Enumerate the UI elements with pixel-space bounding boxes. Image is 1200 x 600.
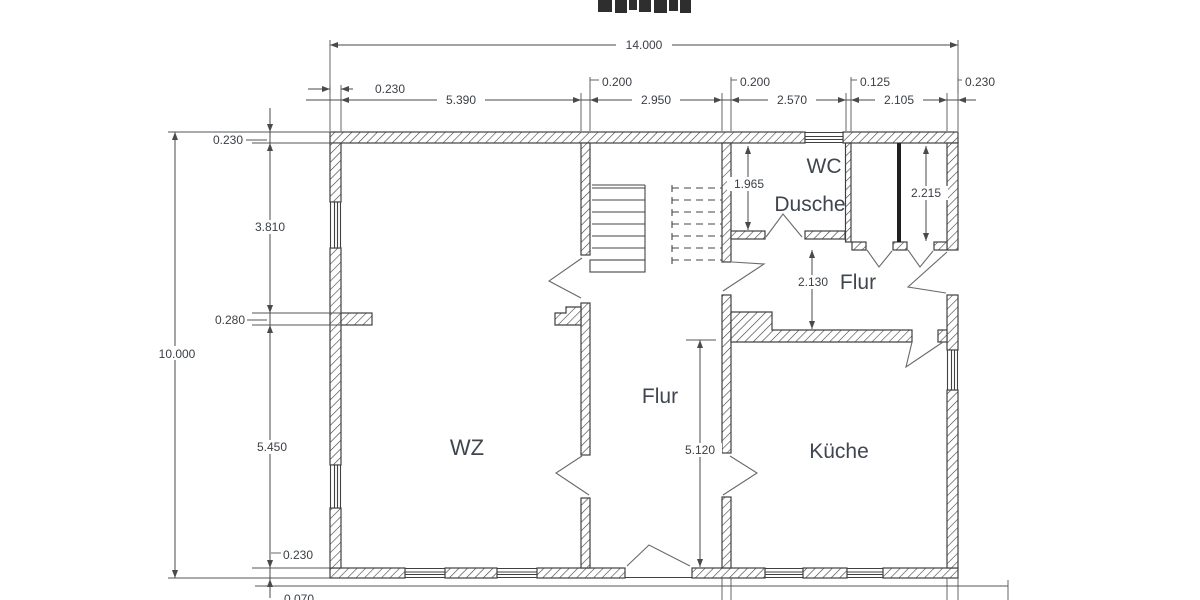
door-icon <box>627 545 690 566</box>
window-icon <box>330 465 341 508</box>
door-icon <box>556 456 589 495</box>
window-icon <box>947 350 958 390</box>
dim-left-0280: 0.280 <box>215 313 245 327</box>
dim-left-0230-bottom: 0.230 <box>283 548 313 562</box>
dim-top-5390: 5.390 <box>446 93 476 107</box>
interior-walls <box>341 143 947 568</box>
room-label-kueche: Küche <box>809 440 869 463</box>
dim-overall-height: 10.000 <box>159 347 196 361</box>
window-icon <box>847 569 883 578</box>
dim-top-2570: 2.570 <box>777 93 807 107</box>
door-icon <box>867 250 892 267</box>
dim-left-3810: 3.810 <box>255 220 285 234</box>
door-icon <box>906 342 943 367</box>
room-label-flur-upper: Flur <box>840 271 876 294</box>
label-backgrounds <box>155 39 948 457</box>
door-icon <box>723 456 757 495</box>
door-icon <box>766 214 802 237</box>
window-icon <box>330 202 341 248</box>
floor-plan-drawing: 14.000 0.230 5.390 0.200 2.950 0.200 2.5… <box>0 0 1200 600</box>
staircase <box>590 185 722 272</box>
window-icon <box>805 132 843 143</box>
dim-top-0230-left: 0.230 <box>375 82 405 96</box>
room-label-dusche: Dusche <box>774 193 845 216</box>
dim-flur-main: 5.120 <box>685 443 715 457</box>
dim-top-0125: 0.125 <box>860 75 890 89</box>
window-icon <box>405 569 445 578</box>
window-icon <box>497 569 537 578</box>
thin-partition-wall <box>897 143 901 242</box>
dim-wc-depth: 1.965 <box>734 177 764 191</box>
dim-top-2950: 2.950 <box>641 93 671 107</box>
dim-top-0230-right: 0.230 <box>965 75 995 89</box>
dim-top-0200-a: 0.200 <box>602 75 632 89</box>
clipped-title-fragment <box>598 0 691 13</box>
dim-left-0230-top: 0.230 <box>213 133 243 147</box>
room-label-wc: WC <box>807 155 842 178</box>
dim-left-5450: 5.450 <box>257 440 287 454</box>
dim-flur-upper: 2.130 <box>798 275 828 289</box>
door-icon <box>549 258 582 298</box>
door-icon <box>908 250 933 267</box>
dim-bottom-partial: 0.070 <box>284 592 314 600</box>
room-label-wz: WZ <box>450 435 484 460</box>
room-label-flur-main: Flur <box>642 385 678 408</box>
door-icon <box>723 262 764 291</box>
window-icon <box>765 569 803 578</box>
dim-top-0200-b: 0.200 <box>740 75 770 89</box>
floor-plan-page: 14.000 0.230 5.390 0.200 2.950 0.200 2.5… <box>0 0 1200 600</box>
exterior-walls <box>330 132 958 578</box>
door-swing-symbols <box>549 214 947 566</box>
window-symbols <box>330 132 958 578</box>
dim-overall-width: 14.000 <box>626 38 663 52</box>
dim-top-2105: 2.105 <box>884 93 914 107</box>
dim-right-room-depth: 2.215 <box>911 186 941 200</box>
